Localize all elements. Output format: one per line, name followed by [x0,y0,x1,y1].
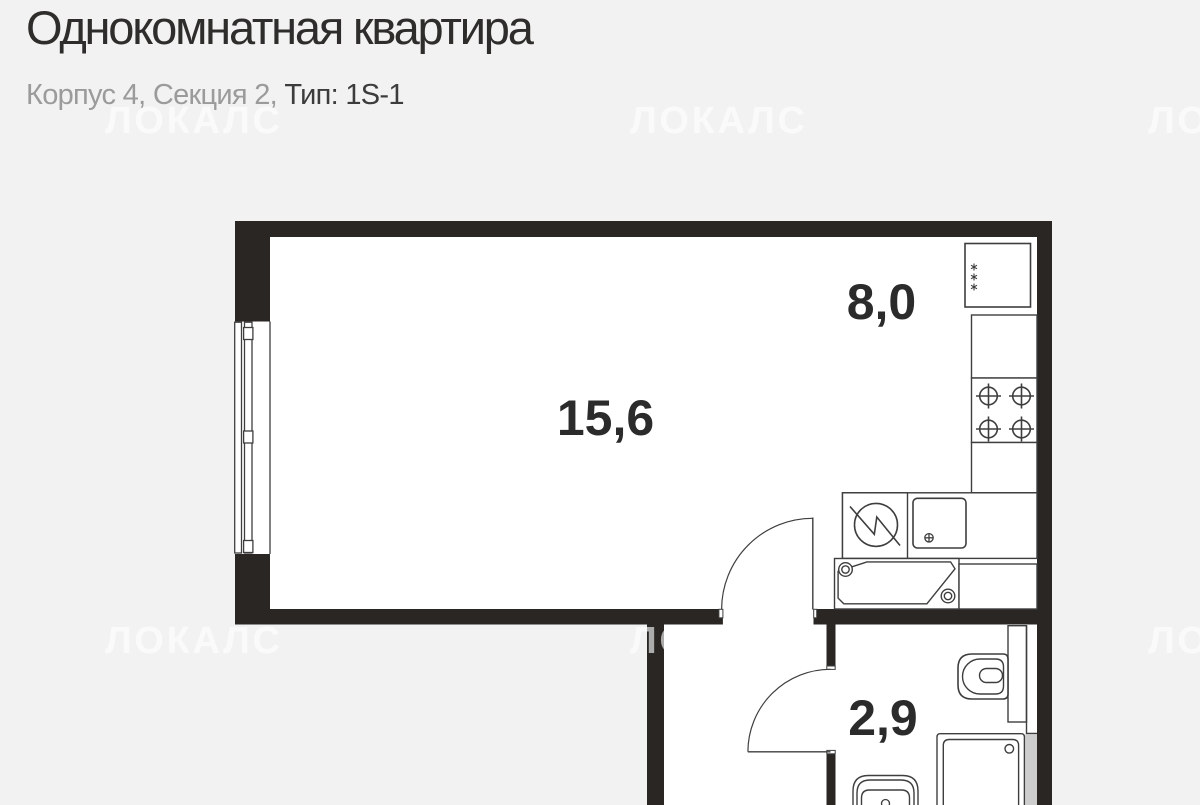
svg-text:8,0: 8,0 [847,274,917,330]
svg-text:15,6: 15,6 [557,390,654,446]
svg-text:2,9: 2,9 [848,690,918,746]
